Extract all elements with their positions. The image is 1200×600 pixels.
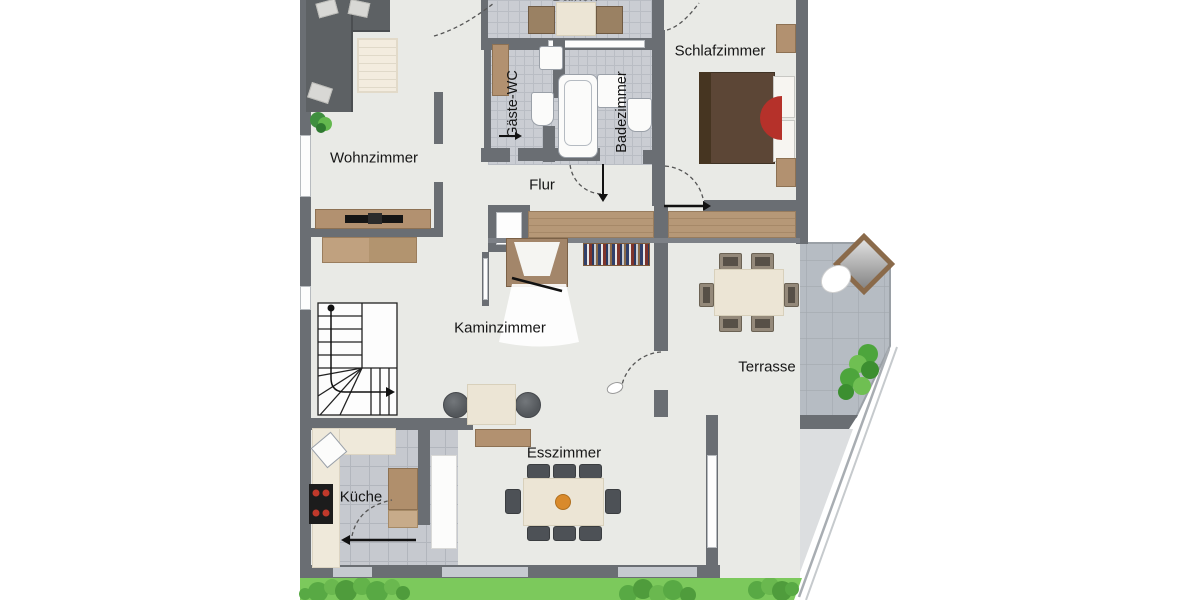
door-handle bbox=[606, 381, 624, 396]
room-label-terrasse: Terrasse bbox=[738, 360, 796, 375]
stairs-arrow bbox=[386, 387, 395, 397]
annotation-layer bbox=[0, 0, 1200, 600]
room-label-schlafzimmer: Schlafzimmer bbox=[675, 44, 766, 59]
door-arc bbox=[664, 166, 704, 205]
door-arrow bbox=[598, 194, 608, 202]
door-arc bbox=[621, 352, 661, 391]
room-label-wohnzimmer: Wohnzimmer bbox=[330, 151, 418, 166]
room-label-gaeste-wc: Gäste-WC bbox=[506, 70, 521, 138]
door-arrow bbox=[703, 201, 711, 211]
door-arrow bbox=[341, 535, 350, 545]
room-label-flur: Flur bbox=[529, 178, 555, 193]
door-arc bbox=[667, 3, 699, 30]
door-arc bbox=[570, 164, 601, 194]
fireplace-glow bbox=[499, 284, 579, 347]
room-label-balkon: Balkon bbox=[552, 0, 598, 4]
stairs-start-dot bbox=[328, 305, 335, 312]
door-arc bbox=[434, 3, 494, 36]
room-label-kueche: Küche bbox=[340, 490, 383, 505]
room-label-badezimmer: Badezimmer bbox=[615, 71, 630, 152]
floor-plan: Wohnzimmer Gäste-WC Badezimmer Schlafzim… bbox=[0, 0, 1200, 600]
room-label-kaminzimmer: Kaminzimmer bbox=[454, 321, 546, 336]
room-label-esszimmer: Esszimmer bbox=[527, 446, 601, 461]
stairs-lines bbox=[318, 303, 397, 415]
stairs-walkline bbox=[331, 308, 387, 392]
